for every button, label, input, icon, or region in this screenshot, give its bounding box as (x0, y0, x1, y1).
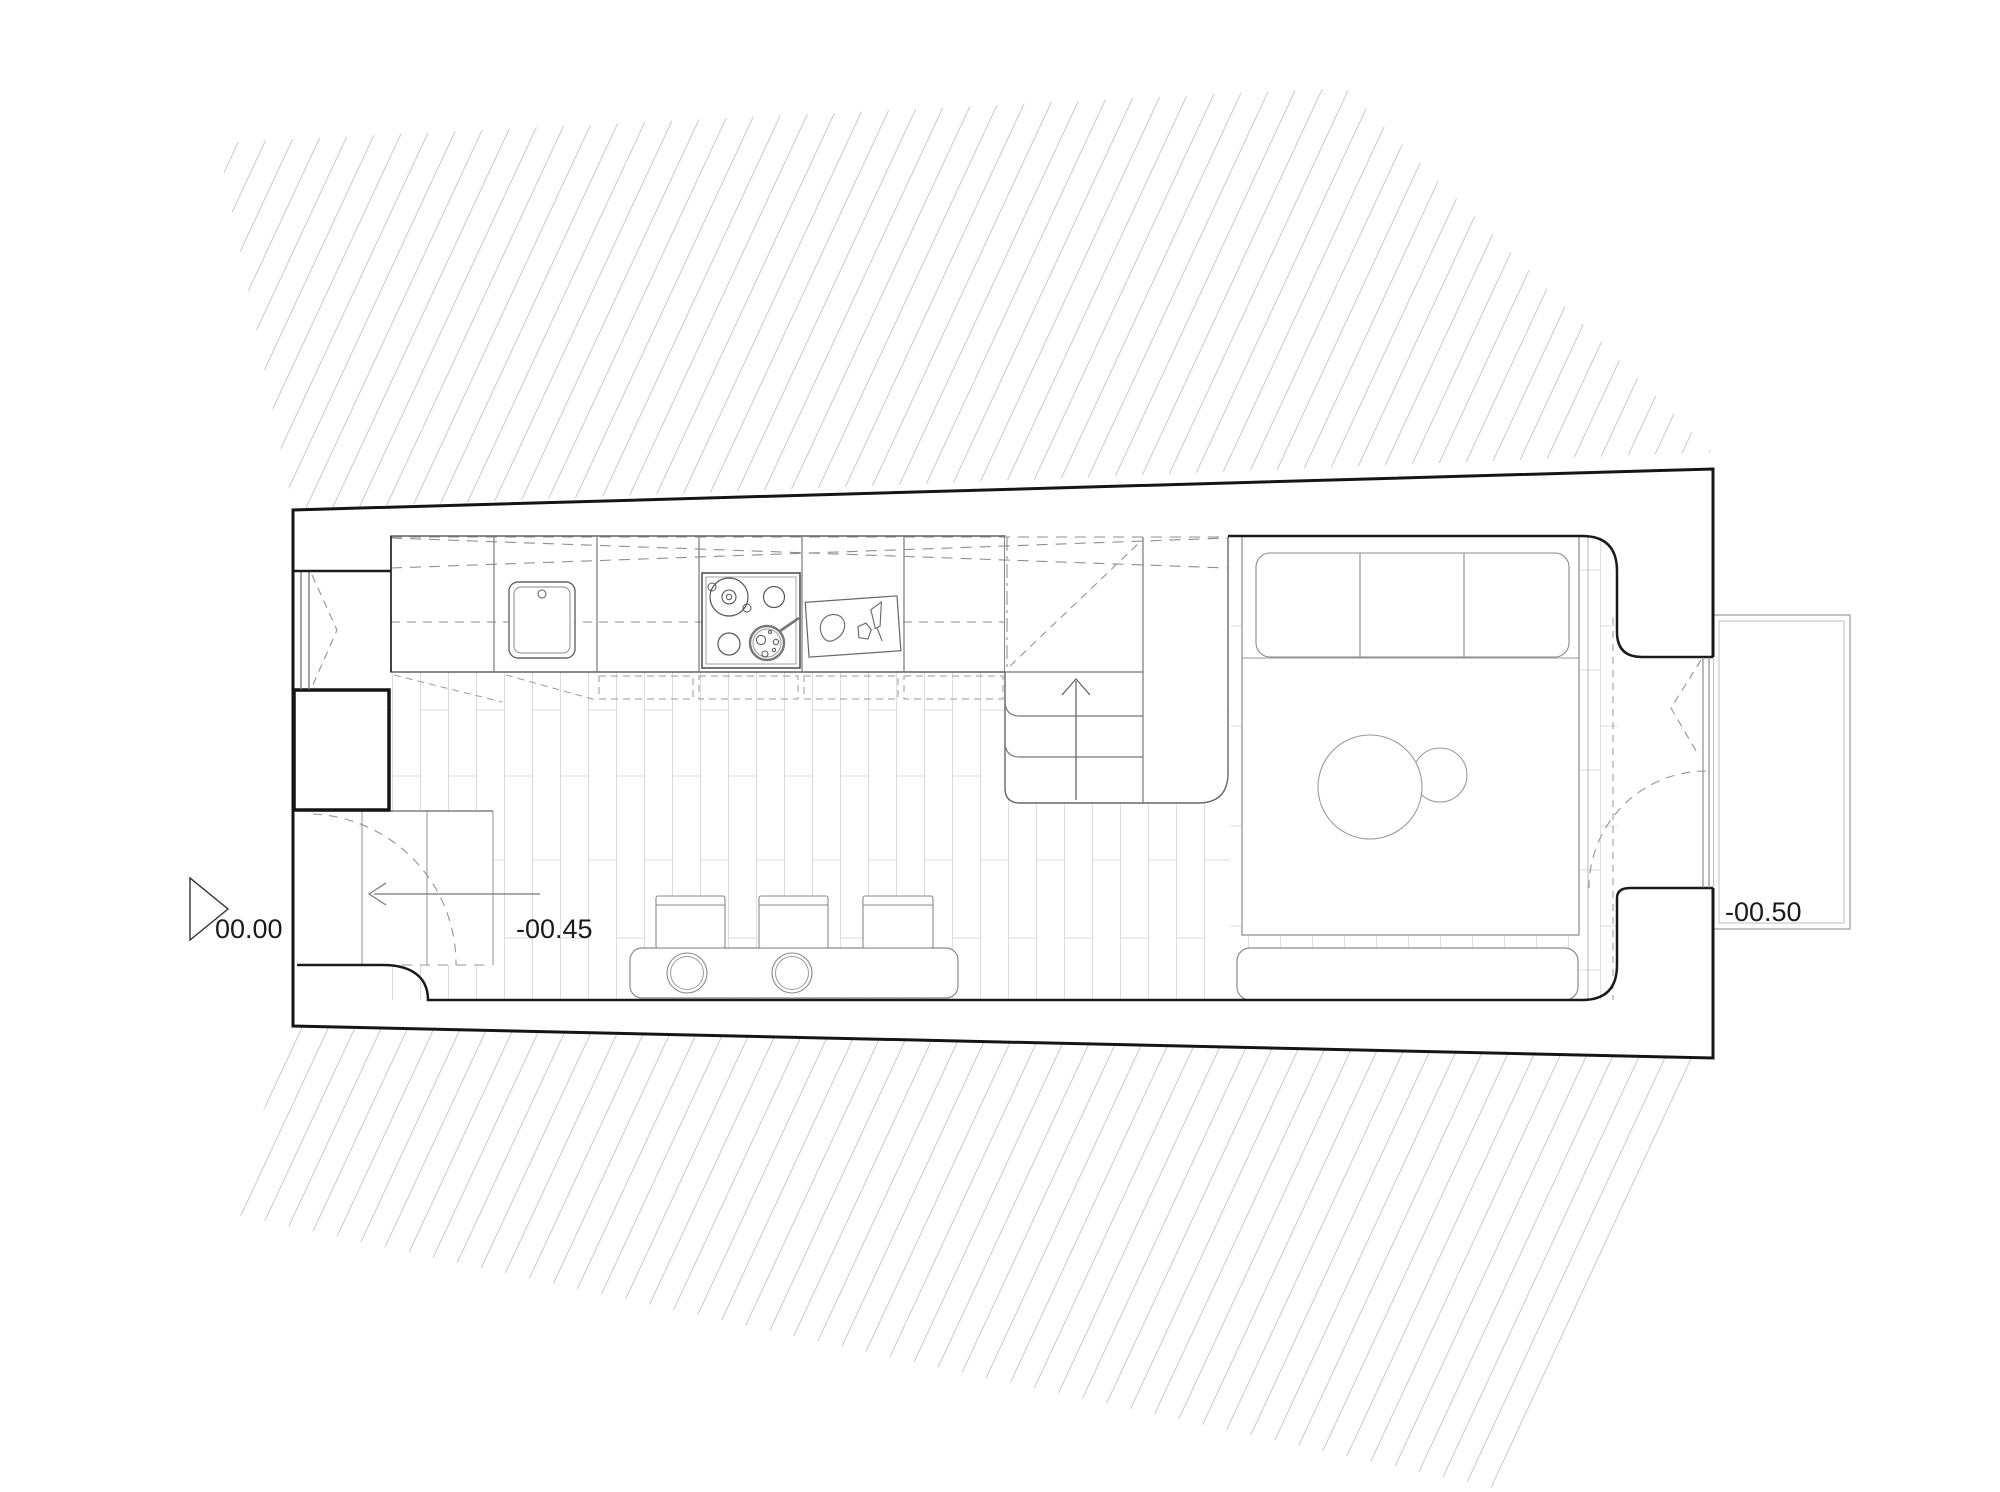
cutting-board (805, 596, 901, 657)
site-hatch-top (218, 88, 1712, 509)
kitchen-stove (702, 573, 800, 668)
staircase (1005, 536, 1228, 803)
bowl-icon (667, 953, 707, 993)
entry-steps (297, 811, 493, 965)
terrace-platform (1713, 615, 1850, 929)
stool (863, 896, 933, 948)
stools (656, 896, 933, 948)
bowl-icon (772, 953, 812, 993)
stool (759, 896, 828, 948)
site-hatch-bottom (228, 1026, 1713, 1492)
level-label-entry: 00.00 (215, 914, 283, 944)
kitchen-sink (509, 582, 575, 658)
bench (1237, 948, 1578, 1000)
bed-pillows (1242, 553, 1579, 658)
level-label-terrace: -00.50 (1725, 897, 1802, 927)
stool (656, 896, 725, 948)
floor-plan-drawing: 00.00 -00.45 -00.50 (0, 0, 2000, 1492)
bed (1242, 536, 1579, 935)
floor-plan-canvas: 00.00 -00.45 -00.50 (0, 0, 2000, 1492)
pier (294, 690, 389, 810)
dining-table (630, 948, 958, 998)
level-label-living: -00.45 (516, 914, 593, 944)
